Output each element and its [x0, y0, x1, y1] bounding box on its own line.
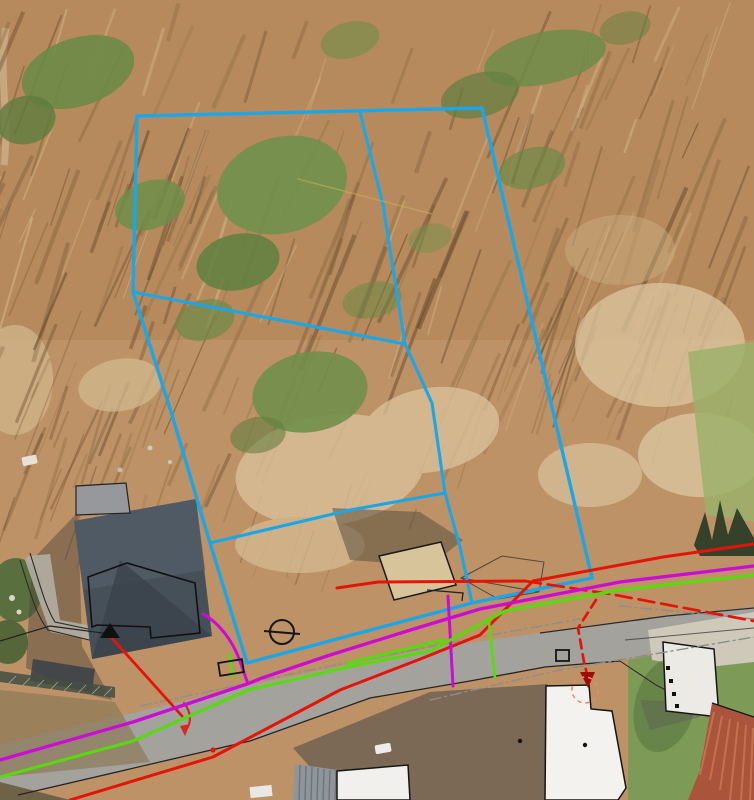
building-annex [76, 483, 130, 515]
building-white-south [337, 765, 410, 800]
red-point-marker [210, 747, 215, 752]
aerial-map [0, 0, 754, 800]
road-point-dot [518, 739, 522, 743]
building-point-dot [583, 743, 587, 747]
aerial-map-viewport[interactable] [0, 0, 754, 800]
